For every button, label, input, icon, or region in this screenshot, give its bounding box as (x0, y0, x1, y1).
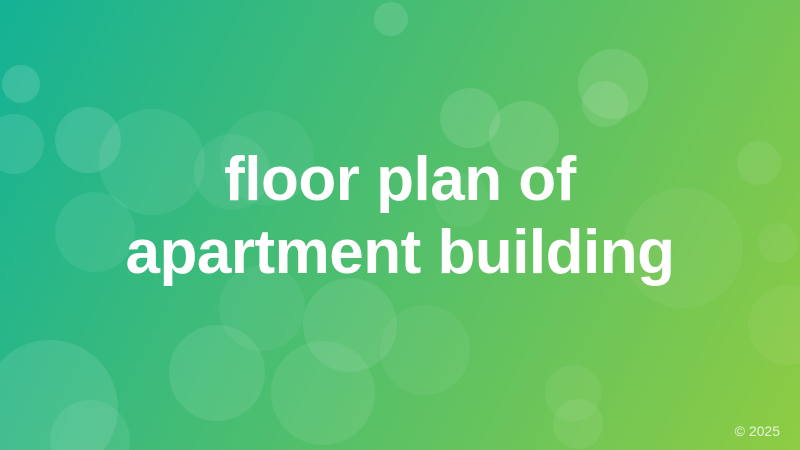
bokeh-circle (748, 285, 800, 365)
bokeh-circle (553, 399, 603, 449)
title-line-1: floor plan of (224, 145, 576, 214)
bokeh-circle (380, 305, 470, 395)
slide-canvas: floor plan of apartment building © 2025 (0, 0, 800, 450)
bokeh-circle (2, 65, 40, 103)
page-title: floor plan of apartment building (0, 143, 800, 289)
bokeh-circle (271, 341, 375, 445)
bokeh-circle (374, 2, 408, 36)
copyright-text: © 2025 (735, 423, 780, 439)
bokeh-circle (582, 81, 628, 127)
title-line-2: apartment building (126, 218, 675, 287)
